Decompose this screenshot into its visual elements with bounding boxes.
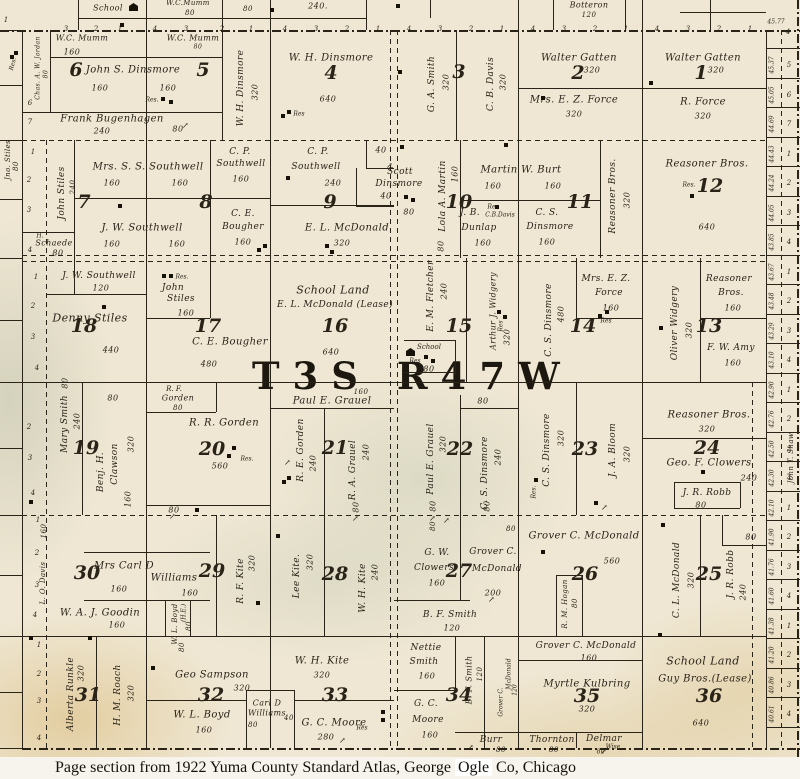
residence-marker: [381, 710, 385, 714]
quarter-number: 1: [249, 25, 253, 33]
owner-label: Lee Kite.: [292, 554, 302, 599]
acreage-label: 240: [69, 180, 77, 195]
section-number: 13: [696, 315, 722, 337]
owner-label: G. W.: [424, 548, 449, 558]
residence-marker: [701, 470, 705, 474]
boundary-line: [722, 545, 766, 546]
boundary-line: [270, 30, 271, 748]
residence-marker: [396, 4, 400, 8]
boundary-line: [797, 0, 799, 757]
acreage-label: 320: [334, 239, 351, 248]
section-number: 31: [75, 684, 101, 706]
lot-number-label: 4: [787, 592, 791, 600]
section-number: 23: [572, 438, 598, 460]
residence-marker: [325, 244, 329, 248]
owner-label: W. H. Kite: [295, 656, 350, 667]
boundary-line: [84, 552, 210, 553]
lot-acreage-label: 43.10: [769, 351, 776, 368]
lot-acreage-label: 40.61: [769, 705, 776, 722]
quarter-number: 2: [593, 25, 597, 33]
residence-marker: [400, 145, 404, 149]
boundary-line: [766, 48, 800, 49]
boundary-line: [642, 0, 643, 30]
residence-marker: [29, 500, 33, 504]
boundary-line: [0, 382, 22, 383]
lot-acreage-label: 44.69: [769, 115, 776, 132]
residence-marker: [263, 244, 267, 248]
acreage-label: 80: [429, 500, 438, 511]
boundary-line: [766, 579, 800, 580]
boundary-line: [394, 600, 470, 601]
lot-number-label: 2: [787, 297, 791, 305]
lot-number-label: 7: [787, 120, 791, 128]
acreage-label: 320: [127, 685, 136, 702]
quarter-number: 3: [562, 25, 566, 33]
section-number: 2: [571, 62, 584, 84]
section-number: 20: [199, 438, 225, 460]
section-number: 24: [694, 437, 720, 459]
survey-arrow-icon: ↗: [443, 516, 450, 525]
boundary-line: [556, 575, 557, 636]
acreage-label: 320: [77, 665, 86, 682]
boundary-line: [576, 732, 577, 748]
quarter-number: 2: [37, 670, 41, 678]
acreage-label: 80: [571, 598, 579, 608]
acreage-label: 320: [314, 671, 331, 680]
owner-label: Dinsmore: [526, 222, 573, 232]
acreage-label: 160: [92, 84, 109, 93]
lot-number-label: 2: [787, 533, 791, 541]
boundary-line: [766, 255, 800, 256]
section-number: 11: [567, 191, 593, 213]
boundary-line: [766, 78, 800, 79]
residence-marker: [495, 205, 499, 209]
owner-label: Grover C.: [469, 547, 517, 557]
lot-acreage-label: 42.76: [769, 410, 776, 427]
boundary-line: [740, 482, 741, 508]
boundary-line: [576, 258, 577, 318]
owner-label: R. Force: [680, 97, 726, 108]
boundary-line: [518, 88, 642, 89]
boundary-line: [22, 30, 23, 748]
quarter-number: 3: [184, 25, 188, 33]
acreage-label: 120: [476, 667, 484, 682]
owner-label: Mrs Carl D: [94, 561, 154, 572]
boundary-line: [766, 638, 800, 639]
annotation-label: School: [417, 343, 441, 351]
owner-label: John Stiles: [57, 166, 67, 219]
owner-label: School: [93, 4, 123, 13]
acreage-label: 320: [623, 192, 632, 209]
owner-label: W. A. J. Goodin: [60, 608, 140, 619]
owner-label: Gorden: [162, 394, 194, 403]
quarter-number: 4: [407, 25, 411, 33]
boundary-line: [74, 198, 270, 199]
boundary-line: [22, 382, 766, 383]
section-number: 21: [322, 437, 348, 459]
boundary-line: [78, 0, 79, 30]
owner-label: R. E. Gorden: [296, 418, 306, 481]
survey-arrow-icon: ↗: [601, 503, 608, 512]
lot-number-label: 3: [787, 681, 791, 689]
section-number: 8: [199, 191, 212, 213]
acreage-label: 320: [442, 74, 451, 91]
owner-label: E. M. Fletcher: [426, 260, 436, 331]
boundary-line: [50, 57, 222, 58]
owner-label: W. L. Boyd: [173, 710, 230, 721]
owner-label: Mrs. E. Z.: [581, 274, 630, 284]
lot-acreage-label: 45.05: [769, 86, 776, 103]
quarter-number: 2: [27, 176, 31, 184]
boundary-line: [22, 261, 766, 262]
owner-label: Thornton: [529, 735, 574, 745]
lot-number-label: 3: [787, 563, 791, 571]
section-number: 6: [69, 59, 82, 81]
boundary-line: [246, 690, 247, 748]
lot-acreage-label: 40.86: [769, 676, 776, 693]
acreage-label: 320: [234, 684, 251, 693]
annotation-label: Res.: [145, 97, 158, 104]
owner-label: Nettie: [410, 643, 441, 653]
lot-number-label: 3: [787, 327, 791, 335]
owner-label: Mary Smith: [60, 395, 70, 453]
acreage-label: 480: [201, 360, 218, 369]
survey-arrow-icon: ↗: [182, 121, 189, 130]
owner-label: C. L. McDonald: [672, 542, 682, 618]
annotation-label: Res.: [682, 182, 695, 189]
lot-acreage-label: 41.20: [769, 646, 776, 663]
section-number: 25: [696, 563, 722, 585]
residence-marker: [504, 143, 508, 147]
boundary-line: [680, 12, 766, 13]
residence-marker: [330, 250, 334, 254]
residence-marker: [10, 55, 14, 59]
acreage-label: 160: [172, 179, 189, 188]
residence-marker: [424, 355, 428, 359]
owner-label: Dinsmore: [375, 179, 422, 189]
quarter-number: 4: [28, 246, 32, 254]
boundary-line: [766, 137, 800, 138]
quarter-number: 1: [4, 16, 8, 24]
residence-marker: [161, 97, 165, 101]
section-number: 16: [322, 315, 348, 337]
acreage-label: 160: [124, 491, 133, 508]
owner-label: John S. Dinsmore: [86, 65, 180, 76]
survey-arrow-icon: ↗: [488, 595, 495, 604]
lot-acreage-label: 45.37: [769, 56, 776, 73]
residence-marker: [287, 476, 291, 480]
plat-map: T3S R47W SchoolW.C.Mumm8080240.Botteron1…: [0, 0, 800, 757]
quarter-number: 3: [686, 25, 690, 33]
quarter-number: 2: [35, 549, 39, 557]
residence-marker: [281, 114, 285, 118]
owner-label: G. A. Smith: [427, 56, 437, 112]
lot-number-label: 4: [786, 28, 790, 36]
owner-label: Paul E. Grauel: [426, 423, 436, 494]
owner-label: Jno. Stiles: [4, 140, 12, 180]
boundary-line: [78, 18, 366, 19]
schoolhouse-icon: [406, 348, 415, 356]
acreage-label: 80: [423, 365, 434, 374]
quarter-number: 2: [27, 423, 31, 431]
section-number: 14: [570, 315, 596, 337]
boundary-line: [0, 515, 22, 516]
lot-acreage-label: 43.48: [769, 292, 776, 309]
survey-arrow-icon: ↗: [339, 736, 346, 745]
boundary-line: [766, 609, 800, 610]
boundary-line: [0, 636, 22, 637]
acreage-label: 80: [185, 621, 193, 631]
lot-acreage-label: 43.67: [769, 263, 776, 280]
owner-label: E. L. McDonald: [305, 223, 389, 234]
boundary-line: [22, 748, 800, 750]
owner-label: Force: [595, 288, 623, 298]
boundary-line: [216, 382, 217, 412]
owner-label: Moore: [412, 715, 444, 725]
boundary-line: [0, 448, 22, 449]
owner-label: Paul E. Grauel: [293, 396, 372, 407]
lot-number-label: 1: [787, 504, 791, 512]
section-number: 22: [447, 438, 473, 460]
owner-label: W.C.Mumm: [166, 0, 210, 7]
owner-label: C. S. Dinsmore: [480, 436, 490, 510]
owner-label: B. F. Smith: [423, 610, 477, 620]
lot-acreage-label: 42.10: [769, 499, 776, 516]
residence-marker: [162, 274, 166, 278]
acreage-label: 640: [699, 223, 716, 232]
boundary-line: [270, 408, 394, 409]
residence-marker: [594, 501, 598, 505]
acreage-label: 240: [325, 179, 342, 188]
boundary-line: [766, 107, 800, 108]
boundary-line: [766, 284, 800, 285]
acreage-label: 320: [251, 84, 260, 101]
boundary-line: [146, 412, 216, 413]
owner-label: W. L. Boyd: [171, 603, 179, 644]
owner-label: Reasoner Bros.: [666, 159, 749, 170]
annotation-label: Wise: [606, 744, 621, 751]
acreage-label: 280: [318, 733, 335, 742]
boundary-line: [642, 30, 643, 748]
owner-label: H. M. Roach: [113, 664, 123, 725]
residence-marker: [257, 248, 261, 252]
owner-label: W. H. Kite: [358, 563, 368, 613]
lot-acreage-label: 45.77: [767, 19, 784, 26]
residence-marker: [398, 70, 402, 74]
owner-label: E. L. McDonald (Lease): [277, 300, 393, 310]
acreage-label: 480: [557, 306, 566, 323]
owner-label: J. R. Robb: [683, 488, 732, 498]
boundary-line: [752, 382, 753, 748]
section-number: 4: [324, 62, 337, 84]
residence-marker: [276, 534, 280, 538]
annotation-label: C.B.Davis: [485, 212, 514, 219]
lot-acreage-label: 44.05: [769, 204, 776, 221]
boundary-line: [455, 636, 456, 690]
boundary-line: [46, 294, 146, 295]
boundary-line: [0, 258, 22, 259]
quarter-number: 4: [33, 611, 37, 619]
owner-label: Williams: [151, 573, 198, 584]
section-number: 28: [322, 563, 348, 585]
lot-acreage-label: 43.85: [769, 233, 776, 250]
residence-marker: [649, 81, 653, 85]
owner-label: Geo Sampson: [175, 670, 249, 681]
owner-label: R. F. Kite: [236, 558, 246, 604]
lot-number-label: 4: [787, 710, 791, 718]
boundary-line: [0, 320, 22, 321]
section-number: 9: [323, 191, 336, 213]
section-number: 1: [694, 62, 707, 84]
lot-acreage-label: 43.29: [769, 322, 776, 339]
owner-label: Bros.: [718, 288, 744, 298]
annotation-label: Res: [293, 111, 304, 118]
acreage-label: 320: [695, 112, 712, 121]
section-number: 3: [452, 61, 465, 83]
acreage-label: 80: [12, 161, 20, 171]
acreage-label: 320: [623, 446, 632, 463]
owner-label: John: [162, 283, 184, 293]
boundary-line: [766, 550, 800, 551]
acreage-label: 320: [306, 554, 315, 571]
acreage-label: 240: [309, 455, 318, 472]
owner-label: C. E. Bougher: [192, 337, 268, 348]
owner-label: Southwell: [216, 159, 265, 169]
residence-marker: [88, 636, 92, 640]
acreage-label: 160: [475, 239, 492, 248]
owner-label: School Land: [666, 655, 739, 668]
boundary-line: [0, 85, 22, 86]
boundary-line: [0, 692, 22, 693]
boundary-line: [146, 700, 246, 701]
boundary-line: [674, 508, 740, 509]
boundary-line: [518, 0, 519, 30]
boundary-line: [722, 515, 723, 545]
acreage-label: 40: [284, 714, 294, 722]
caption-bar: Page section from 1922 Yuma County Stand…: [0, 757, 800, 779]
residence-marker: [541, 550, 545, 554]
section-number: 12: [697, 175, 723, 197]
quarter-number: 4: [531, 25, 535, 33]
boundary-line: [324, 408, 325, 515]
boundary-line: [456, 30, 457, 140]
owner-label: Smith: [410, 657, 439, 667]
boundary-line: [146, 0, 147, 30]
acreage-label: 40: [375, 146, 386, 155]
acreage-label: 240: [73, 413, 82, 430]
boundary-line: [460, 408, 518, 409]
acreage-label: 160: [725, 359, 742, 368]
boundary-line: [781, 30, 782, 748]
boundary-line: [0, 575, 22, 576]
acreage-label: 320: [699, 425, 716, 434]
residence-marker: [497, 310, 501, 314]
boundary-line: [710, 0, 711, 30]
acreage-label: 120: [582, 11, 597, 19]
owner-label: Benj. H.: [96, 452, 106, 492]
annotation-label: (H.E.): [181, 604, 188, 622]
acreage-label: 160: [451, 166, 460, 183]
lot-acreage-label: 41.90: [769, 528, 776, 545]
owner-label: John T. Shaw: [787, 433, 795, 484]
owner-label: Chas. A. W. Jordan: [35, 36, 42, 99]
acreage-label: 160: [104, 179, 121, 188]
lot-number-label: 1: [787, 622, 791, 630]
residence-marker: [658, 633, 662, 637]
quarter-number: 3: [314, 25, 318, 33]
owner-label: Guy Bros.(Lease): [658, 674, 752, 685]
owner-label: Reasoner Bros.: [668, 410, 751, 421]
acreage-label: 320: [685, 322, 694, 339]
acreage-label: 40: [380, 192, 391, 201]
acreage-label: 80: [61, 377, 70, 388]
residence-marker: [287, 110, 291, 114]
owner-label: Grover C. McDonald: [536, 641, 637, 651]
boundary-line: [766, 697, 800, 698]
acreage-label: 80: [549, 746, 559, 754]
acreage-label: 80: [437, 240, 446, 251]
acreage-label: 120: [93, 284, 110, 293]
acreage-label: 80: [243, 5, 253, 13]
boundary-line: [766, 491, 800, 492]
acreage-label: 160: [40, 524, 48, 539]
lot-acreage-label: 42.90: [769, 381, 776, 398]
residence-marker: [227, 454, 231, 458]
section-number: 36: [696, 685, 722, 707]
acreage-label: 160: [160, 84, 177, 93]
acreage-label: 320: [579, 705, 596, 714]
boundary-line: [246, 690, 294, 691]
acreage-label: 320: [584, 66, 601, 75]
section-number: 32: [198, 684, 224, 706]
lot-acreage-label: 44.24: [769, 174, 776, 191]
acreage-label: 80: [403, 208, 414, 217]
survey-arrow-icon: ↗: [467, 743, 474, 752]
acreage-label: 240: [494, 449, 503, 466]
owner-label: Delmar: [586, 734, 622, 744]
boundary-line: [46, 140, 47, 748]
lot-number-label: 2: [787, 651, 791, 659]
owner-label: B. F. Smith: [465, 656, 474, 705]
quarter-number: 2: [469, 25, 473, 33]
survey-arrow-icon: ↗: [386, 161, 393, 170]
boundary-line: [553, 0, 554, 30]
owner-label: J. W. Southwell: [62, 271, 136, 281]
annotation-label: Grover C.: [498, 687, 505, 716]
acreage-label: 80: [352, 501, 361, 512]
owner-label: School Land: [296, 284, 369, 297]
owner-label: C. B. Davis: [486, 57, 496, 111]
owner-label: Botteron: [570, 1, 609, 10]
owner-label: C. S. Dinsmore: [542, 413, 552, 487]
acreage-label: 80: [248, 721, 258, 729]
lot-number-label: 6: [787, 91, 791, 99]
residence-marker: [120, 23, 124, 27]
boundary-line: [404, 340, 455, 341]
owner-label: J. R. Robb: [726, 550, 736, 599]
boundary-line: [642, 88, 766, 89]
lot-acreage-label: 44.43: [769, 145, 776, 162]
residence-marker: [270, 8, 274, 12]
boundary-line: [22, 636, 766, 637]
acreage-label: 160: [169, 240, 186, 249]
section-number: 17: [195, 315, 221, 337]
owner-label: Oliver Widgery: [670, 286, 680, 361]
residence-marker: [195, 508, 199, 512]
quarter-number: 1: [748, 25, 752, 33]
owner-label: C. S.: [536, 208, 559, 218]
acreage-label: 160: [545, 182, 562, 191]
